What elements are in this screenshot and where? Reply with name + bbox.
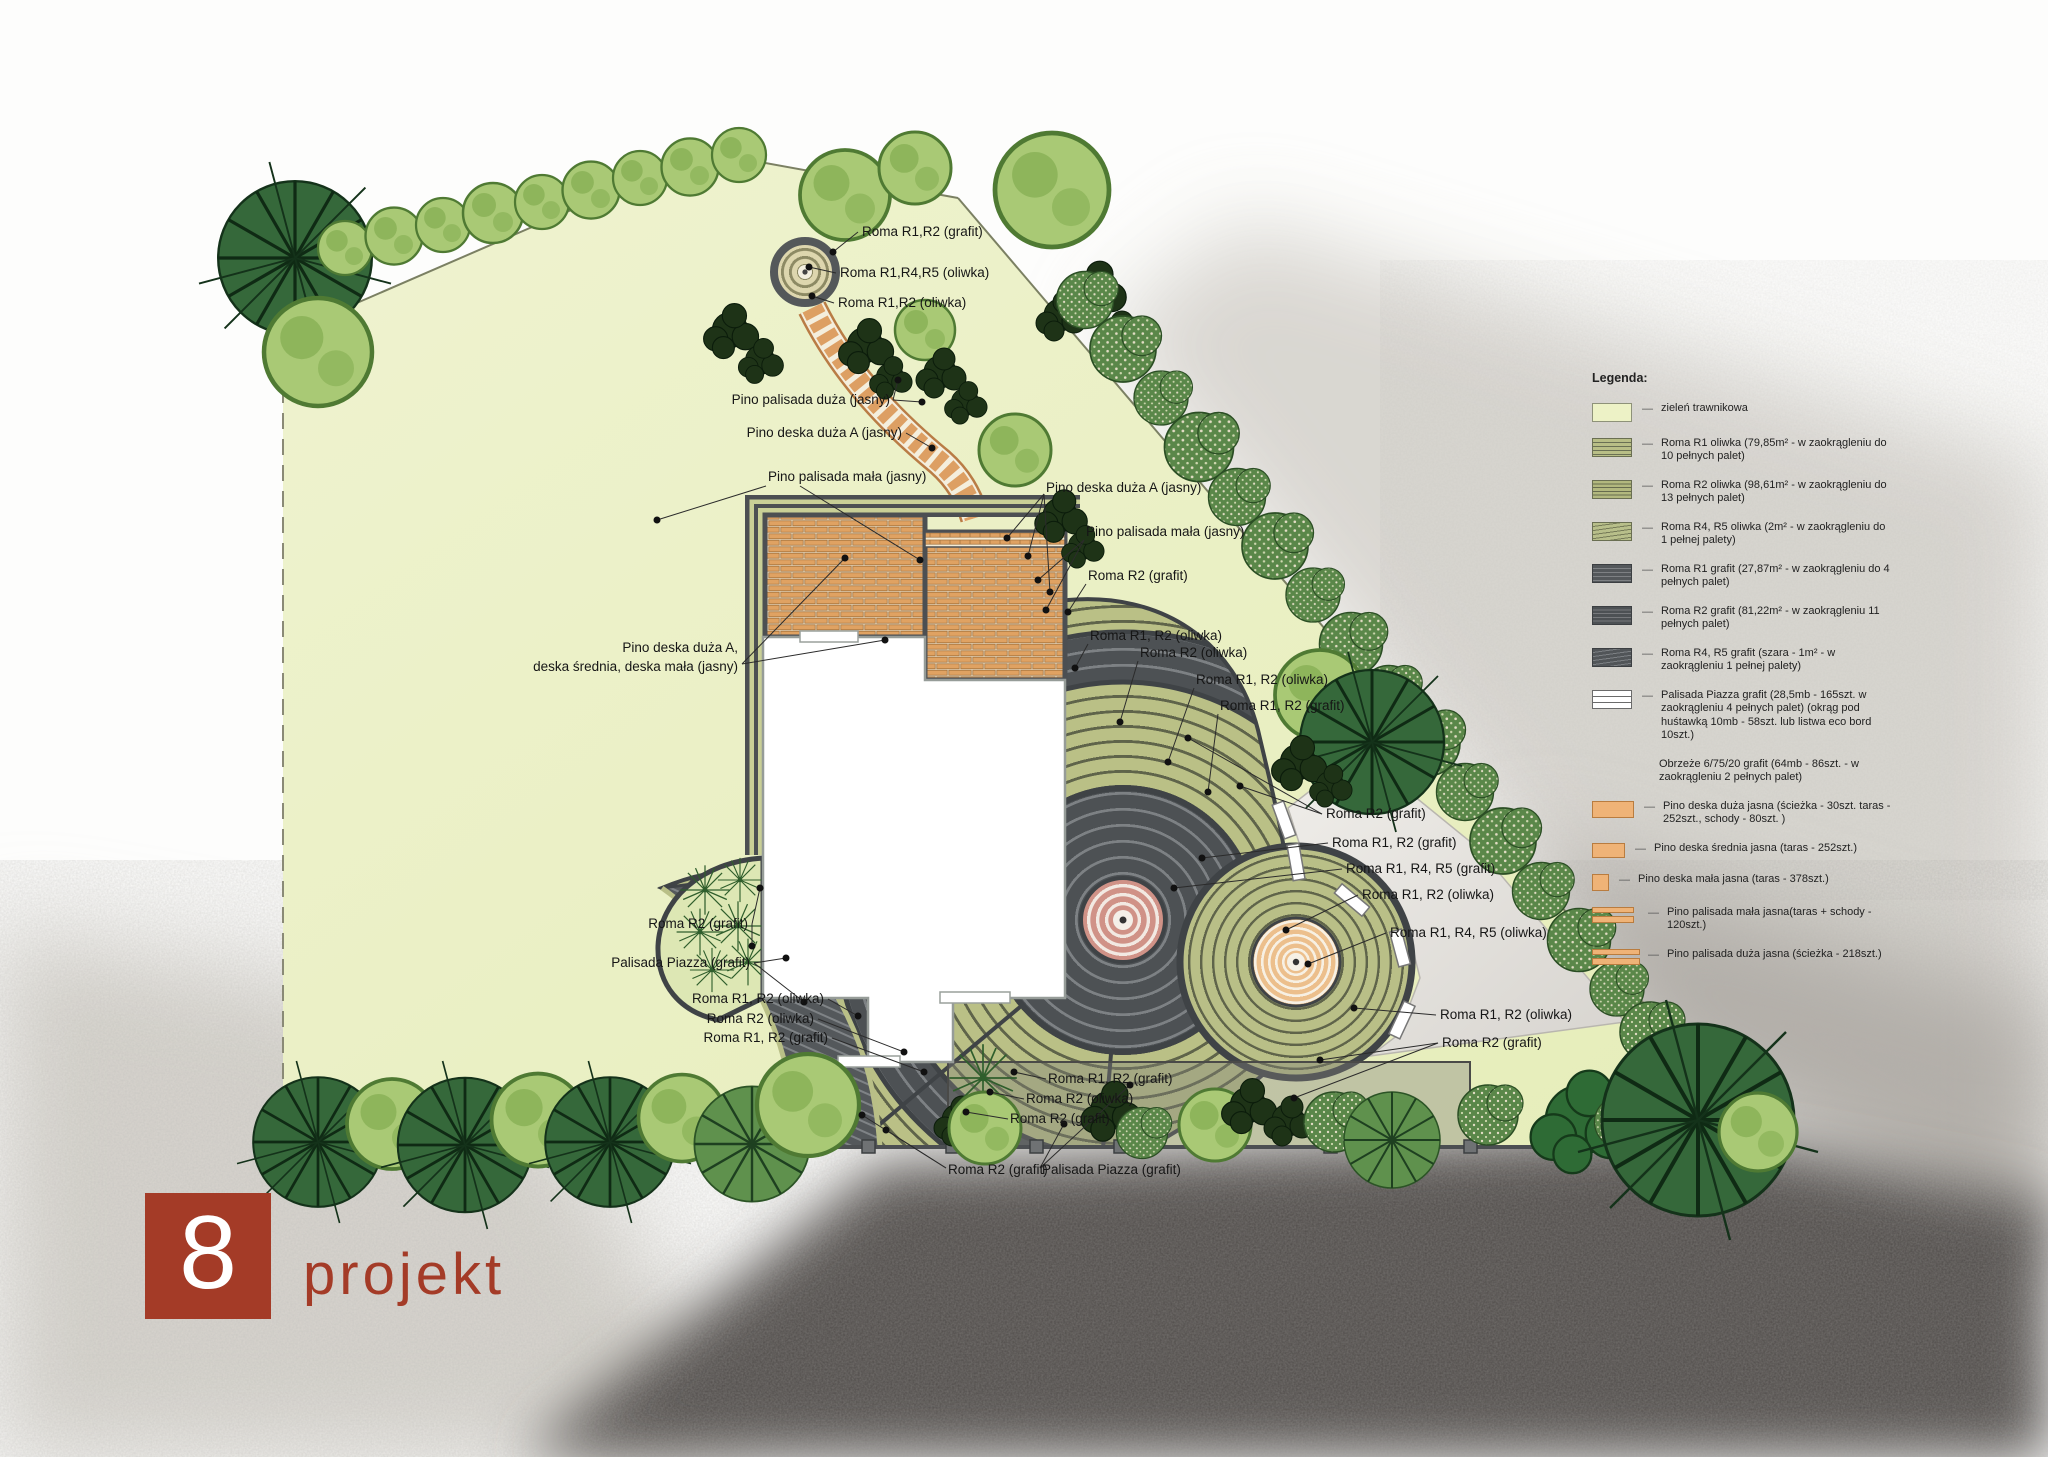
plan-label: Roma R1, R2 (oliwka) bbox=[1440, 1007, 1572, 1022]
plan-label: Roma R1, R2 (oliwka) bbox=[1090, 628, 1222, 643]
plan-label: Roma R2 (grafit) bbox=[1326, 806, 1426, 821]
logo-square: 8 bbox=[145, 1193, 271, 1319]
plan-label: Roma R2 (grafit) bbox=[1010, 1111, 1110, 1126]
garden-design-sheet: { "plan": { "labels": [ {"text": "Roma R… bbox=[0, 0, 2048, 1457]
tree-icon bbox=[318, 221, 372, 275]
tree-icon bbox=[879, 132, 951, 204]
plan-label: Pino palisada mała (jasny) bbox=[1086, 524, 1244, 539]
legend-item-deska-duza: — Pino deska duża jasna (ścieżka - 30szt… bbox=[1592, 800, 1992, 827]
legend-item-roma-r2-grafit: — Roma R2 grafit (81,22m² - w zaokrąglen… bbox=[1592, 605, 1992, 632]
tree-icon bbox=[712, 128, 766, 182]
palisade-swatch-icon bbox=[1592, 690, 1632, 709]
plan-label: Palisada Piazza (grafit) bbox=[611, 955, 750, 970]
plan-label: Roma R2 (oliwka) bbox=[707, 1011, 814, 1026]
tree-icon bbox=[1719, 1093, 1797, 1171]
plan-label: Roma R1, R4, R5 (grafit) bbox=[1346, 861, 1495, 876]
plan-label: Roma R1, R2 (grafit) bbox=[703, 1030, 828, 1045]
lawn-swatch-icon bbox=[1592, 403, 1632, 422]
house-door bbox=[940, 992, 1010, 1003]
tree-icon bbox=[416, 198, 470, 252]
legend-title: Legenda: bbox=[1592, 372, 1992, 386]
plan-label: Pino deska duża A, bbox=[622, 640, 738, 655]
plan-label: Palisada Piazza (grafit) bbox=[1042, 1162, 1181, 1177]
tree-icon bbox=[979, 414, 1051, 486]
olive-paver-swatch-icon bbox=[1592, 480, 1632, 499]
plan-label: Roma R1, R4, R5 (oliwka) bbox=[1390, 925, 1547, 940]
house-door bbox=[800, 631, 858, 642]
plan-label: deska średnia, deska mała (jasny) bbox=[533, 659, 738, 674]
plan-label: Pino palisada duża (jasny) bbox=[732, 392, 890, 407]
wood-palisade-swatch-icon bbox=[1592, 949, 1638, 965]
legend-item-lawn: — zieleń trawnikowa bbox=[1592, 402, 1992, 422]
legend-item-palisada-piazza: — Palisada Piazza grafit (28,5mb - 165sz… bbox=[1592, 689, 1992, 743]
empty-swatch bbox=[1592, 759, 1630, 760]
plan-label: Roma R1,R2 (grafit) bbox=[862, 224, 983, 239]
plan-label: Pino deska duża A (jasny) bbox=[747, 425, 902, 440]
legend-item-deska-mala: — Pino deska mała jasna (taras - 378szt.… bbox=[1592, 873, 1992, 891]
legend-item-roma-r1-grafit: — Roma R1 grafit (27,87m² - w zaokrąglen… bbox=[1592, 563, 1992, 590]
tree-icon bbox=[995, 133, 1109, 247]
wood-board-swatch-icon bbox=[1592, 801, 1634, 818]
spiral-circle-feature bbox=[771, 238, 839, 306]
graphite-paver-swatch-icon bbox=[1592, 564, 1632, 583]
plan-label: Roma R2 (grafit) bbox=[948, 1162, 1048, 1177]
plan-label: Roma R1, R2 (grafit) bbox=[1332, 835, 1457, 850]
legend-item-palisada-duza: — Pino palisada duża jasna (ścieżka - 21… bbox=[1592, 948, 1992, 965]
legend-item-deska-srednia: — Pino deska średnia jasna (taras - 252s… bbox=[1592, 842, 1992, 858]
tree-icon bbox=[264, 298, 372, 406]
wood-board-swatch-icon bbox=[1592, 874, 1609, 891]
studio-logo: 8 projekt bbox=[145, 1193, 271, 1319]
plan-label: Roma R2 (grafit) bbox=[1442, 1035, 1542, 1050]
plan-label: Roma R1, R2 (oliwka) bbox=[1196, 672, 1328, 687]
tree-icon bbox=[662, 139, 719, 196]
plan-label: Roma R1, R2 (oliwka) bbox=[1362, 887, 1494, 902]
palm-tree-icon bbox=[1344, 1092, 1440, 1188]
plan-label: Roma R1, R2 (grafit) bbox=[1220, 698, 1345, 713]
legend-item-roma-r2-oliwka: — Roma R2 oliwka (98,61m² - w zaokrąglen… bbox=[1592, 479, 1992, 506]
plan-label: Roma R1,R4,R5 (oliwka) bbox=[840, 265, 989, 280]
legend: Legenda: — zieleń trawnikowa — Roma R1 o… bbox=[1592, 372, 1992, 980]
plan-label: Roma R2 (grafit) bbox=[1088, 568, 1188, 583]
tree-icon bbox=[949, 1092, 1021, 1164]
tree-icon bbox=[757, 1054, 859, 1156]
graphite-paver-swatch-icon bbox=[1592, 606, 1632, 625]
legend-item-obrzeze: — Obrzeże 6/75/20 grafit (64mb - 86szt. … bbox=[1592, 758, 1992, 785]
tree-icon bbox=[515, 175, 569, 229]
legend-item-palisada-mala: — Pino palisada mała jasna(taras + schod… bbox=[1592, 906, 1992, 933]
wood-palisade-swatch-icon bbox=[1592, 907, 1638, 923]
logo-number: 8 bbox=[179, 1201, 237, 1305]
legend-item-roma-r1-oliwka: — Roma R1 oliwka (79,85m² - w zaokrąglen… bbox=[1592, 437, 1992, 464]
plan-label: Roma R2 (oliwka) bbox=[1140, 645, 1247, 660]
plan-label: Pino palisada mała (jasny) bbox=[768, 469, 926, 484]
house-door bbox=[838, 1056, 900, 1067]
tree-icon bbox=[366, 208, 423, 265]
plan-label: Roma R1, R2 (grafit) bbox=[1048, 1071, 1173, 1086]
plan-label: Pino deska duża A (jasny) bbox=[1046, 480, 1201, 495]
wood-board-swatch-icon bbox=[1592, 843, 1625, 858]
plan-label: Roma R1, R2 (oliwka) bbox=[692, 991, 824, 1006]
tree-icon bbox=[463, 183, 523, 243]
olive-paver-swatch-icon bbox=[1592, 438, 1632, 457]
tree-icon bbox=[563, 162, 620, 219]
olive-paver-swatch-icon bbox=[1592, 522, 1632, 541]
tree-icon bbox=[613, 151, 667, 205]
legend-item-roma-r4r5-grafit: — Roma R4, R5 grafit (szara - 1m² - w za… bbox=[1592, 647, 1992, 674]
plan-label: Roma R2 (oliwka) bbox=[1026, 1091, 1133, 1106]
plan-label: Roma R1,R2 (oliwka) bbox=[838, 295, 966, 310]
legend-item-roma-r4r5-oliwka: — Roma R4, R5 oliwka (2m² - w zaokrąglen… bbox=[1592, 521, 1992, 548]
plan-label: Roma R2 (grafit) bbox=[648, 916, 748, 931]
logo-wordmark: projekt bbox=[303, 1241, 505, 1308]
graphite-paver-swatch-icon bbox=[1592, 648, 1632, 667]
